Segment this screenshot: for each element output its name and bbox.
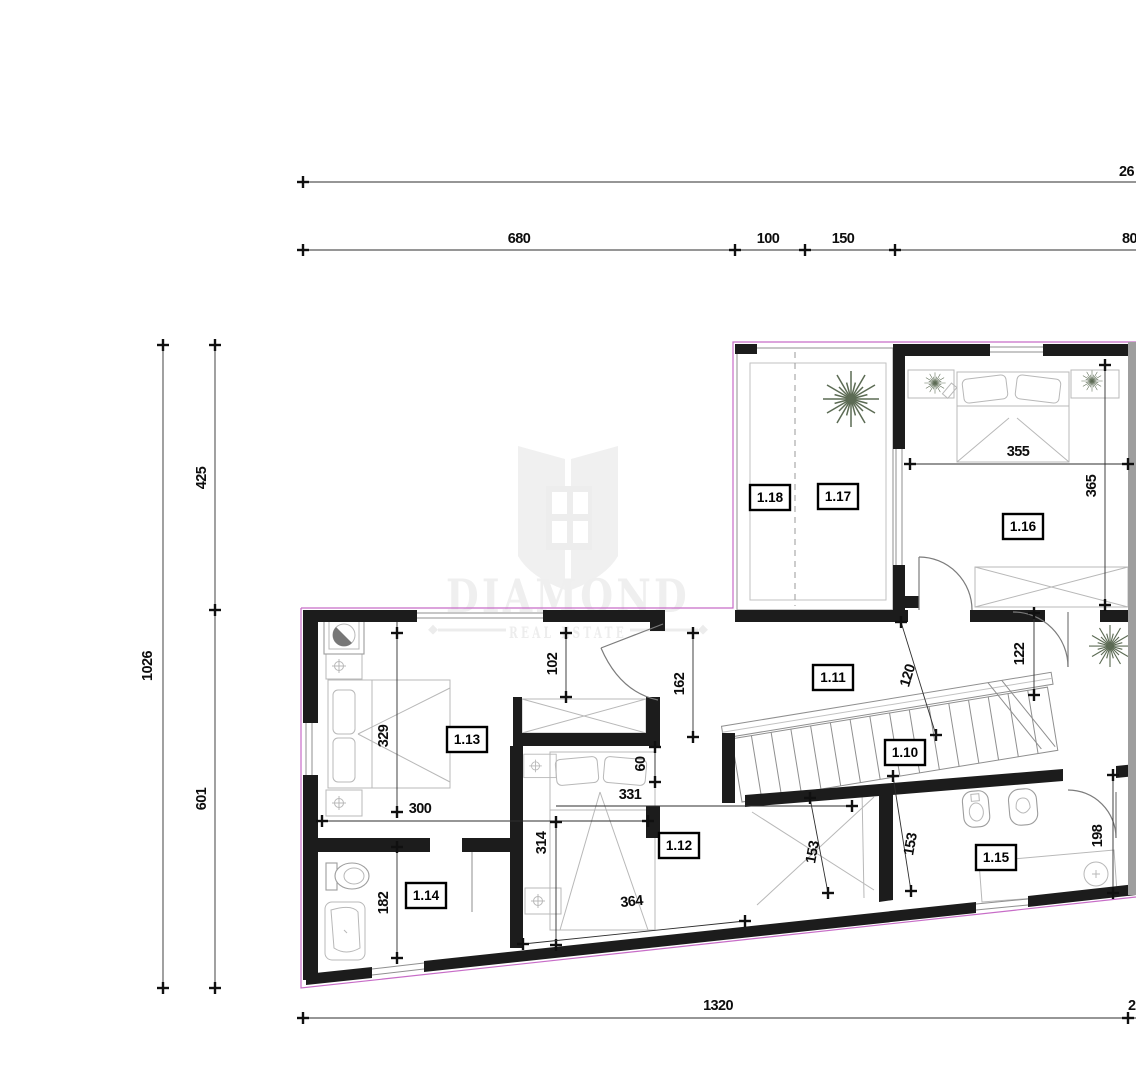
svg-text:1.16: 1.16 — [1010, 519, 1037, 534]
nightstand-icon — [326, 653, 362, 679]
svg-text:1.12: 1.12 — [666, 838, 692, 853]
room-label-116: 1.16 — [1003, 514, 1043, 539]
dim-text: 122 — [1012, 642, 1028, 665]
room-label-113: 1.13 — [447, 727, 487, 752]
dim-text: 26 — [1119, 164, 1134, 180]
dim-text: 364 — [620, 893, 644, 911]
room-label-110: 1.10 — [885, 740, 925, 765]
room-label-115: 1.15 — [976, 845, 1016, 870]
dim-text: 331 — [619, 787, 642, 803]
svg-text:1.14: 1.14 — [413, 888, 440, 903]
plant-icon — [1089, 625, 1131, 667]
dim-text: 80 — [1122, 231, 1136, 247]
dim-text: 329 — [376, 724, 392, 747]
svg-text:1.10: 1.10 — [892, 745, 918, 760]
svg-text:1.11: 1.11 — [820, 670, 846, 685]
room-label-114: 1.14 — [406, 883, 446, 908]
dim-text: 100 — [757, 231, 780, 247]
dim-text: 425 — [194, 466, 210, 489]
dim-text: 153 — [803, 839, 823, 864]
room-label-118: 1.18 — [750, 485, 790, 510]
plant-icon — [823, 371, 879, 427]
dim-text: 150 — [832, 231, 855, 247]
dim-text: 300 — [409, 801, 432, 817]
closet-icon — [522, 699, 646, 733]
floor-plan-canvas: DIAMOND REAL ESTATE — [0, 0, 1136, 1080]
door-arc-116 — [919, 557, 972, 610]
dim-text: 1026 — [140, 651, 156, 681]
dim-text: 1320 — [703, 998, 733, 1014]
dim-text: 2 — [1128, 998, 1136, 1014]
svg-text:1.15: 1.15 — [983, 850, 1010, 865]
room-label-117: 1.17 — [818, 484, 858, 509]
section-cut-edge — [1128, 342, 1136, 895]
nightstand-icon — [326, 790, 362, 816]
dim-text: 314 — [534, 831, 550, 854]
nightstand-icon — [524, 754, 556, 777]
dim-text: 601 — [194, 787, 210, 810]
svg-text:1.18: 1.18 — [757, 490, 784, 505]
dim-text: 153 — [901, 831, 921, 856]
svg-text:1.17: 1.17 — [825, 489, 851, 504]
toilet-icon — [326, 863, 369, 890]
bathtub-icon — [325, 902, 365, 960]
toilet-icon — [1008, 788, 1039, 826]
dim-text: 365 — [1084, 474, 1100, 497]
dim-text: 60 — [633, 756, 649, 771]
dim-text: 102 — [545, 652, 561, 675]
dim-text: 120 — [897, 662, 919, 689]
dim-text: 182 — [376, 891, 392, 914]
room-label-112: 1.12 — [659, 833, 699, 858]
windows — [306, 347, 1043, 975]
dim-text: 162 — [672, 672, 688, 695]
dim-text: 355 — [1007, 444, 1030, 460]
bidet-icon — [962, 790, 991, 828]
room-label-111: 1.11 — [813, 665, 853, 690]
dim-text: 198 — [1090, 824, 1106, 847]
dim-text: 680 — [508, 231, 531, 247]
svg-text:1.13: 1.13 — [454, 732, 481, 747]
lamp-icon — [924, 370, 1102, 393]
